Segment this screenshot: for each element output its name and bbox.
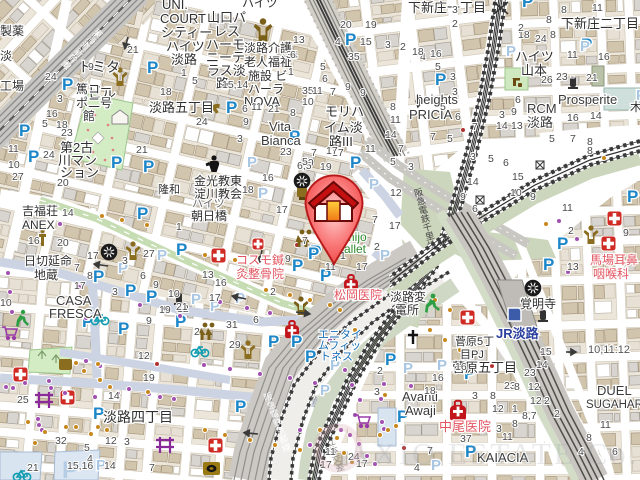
- svg-text:2: 2: [568, 225, 574, 237]
- svg-text:11: 11: [325, 446, 336, 458]
- svg-text:21: 21: [127, 44, 139, 56]
- svg-text:10: 10: [302, 96, 314, 108]
- svg-text:1: 1: [181, 67, 187, 79]
- svg-text:6: 6: [242, 103, 248, 115]
- svg-text:12: 12: [138, 350, 150, 362]
- svg-text:5: 5: [390, 156, 396, 168]
- svg-text:8: 8: [561, 4, 567, 16]
- svg-text:2: 2: [270, 286, 276, 298]
- svg-text:5: 5: [440, 101, 446, 113]
- svg-text:13: 13: [293, 34, 305, 46]
- svg-text:7: 7: [472, 121, 478, 133]
- svg-text:P: P: [308, 244, 319, 263]
- svg-text:3: 3: [452, 86, 458, 98]
- svg-text:イム淡: イム淡: [324, 120, 363, 135]
- svg-text:山口パ: 山口パ: [207, 10, 246, 25]
- svg-text:覚明寺: 覚明寺: [520, 297, 556, 311]
- svg-text:地蔵: 地蔵: [34, 268, 58, 282]
- svg-text:P: P: [345, 30, 356, 49]
- svg-text:8: 8: [87, 270, 93, 282]
- svg-text:FRESCA: FRESCA: [49, 306, 102, 321]
- svg-text:2: 2: [400, 41, 406, 53]
- svg-text:20: 20: [57, 177, 69, 189]
- svg-text:COURT: COURT: [160, 11, 206, 26]
- svg-text:24: 24: [45, 71, 57, 83]
- svg-text:2: 2: [374, 241, 380, 253]
- svg-text:12: 12: [105, 435, 117, 447]
- svg-text:7: 7: [311, 147, 317, 159]
- svg-text:木島: 木島: [630, 99, 640, 114]
- svg-text:下新庄一丁目: 下新庄一丁目: [408, 0, 486, 15]
- svg-text:8: 8: [512, 418, 518, 430]
- svg-text:10,11:12: 10,11:12: [588, 344, 630, 356]
- svg-text:18: 18: [242, 184, 254, 196]
- svg-text:13: 13: [511, 120, 523, 132]
- svg-text:18: 18: [160, 86, 172, 98]
- svg-text:7: 7: [570, 133, 576, 145]
- svg-text:7: 7: [302, 235, 308, 247]
- svg-text:14: 14: [385, 129, 397, 141]
- svg-text:P: P: [305, 347, 316, 366]
- svg-text:PRICIA: PRICIA: [409, 107, 453, 122]
- svg-text:P: P: [385, 350, 396, 369]
- svg-text:P: P: [403, 360, 413, 377]
- svg-text:17: 17: [326, 145, 338, 157]
- svg-text:7: 7: [74, 262, 80, 274]
- svg-text:工場: 工場: [0, 79, 24, 93]
- svg-text:6: 6: [290, 49, 296, 61]
- svg-text:21: 21: [268, 103, 280, 115]
- svg-text:6: 6: [472, 203, 478, 215]
- svg-text:9: 9: [345, 81, 351, 93]
- svg-text:P: P: [292, 256, 303, 275]
- svg-text:13: 13: [202, 269, 214, 281]
- svg-text:ポ二号: ポ二号: [76, 96, 112, 110]
- svg-text:4: 4: [335, 36, 341, 48]
- svg-text:14: 14: [467, 176, 479, 188]
- svg-text:12: 12: [492, 403, 504, 415]
- svg-text:10: 10: [510, 187, 522, 199]
- svg-text:16: 16: [262, 172, 274, 184]
- svg-text:6: 6: [253, 314, 259, 326]
- svg-text:5: 5: [447, 133, 453, 145]
- svg-text:AXIO ESTATE Co.,: AXIO ESTATE Co.,: [348, 436, 640, 471]
- svg-text:3: 3: [57, 93, 63, 105]
- svg-text:21: 21: [27, 462, 39, 474]
- svg-text:12: 12: [390, 187, 402, 199]
- svg-text:17: 17: [87, 250, 99, 262]
- svg-text:10: 10: [0, 297, 12, 309]
- svg-text:21: 21: [176, 301, 188, 313]
- svg-text:23: 23: [280, 146, 292, 158]
- svg-text:P: P: [147, 58, 158, 77]
- svg-text:ハイツ: ハイツ: [515, 49, 554, 64]
- svg-text:17: 17: [209, 292, 221, 304]
- svg-text:2: 2: [518, 22, 524, 34]
- svg-text:16: 16: [598, 51, 610, 63]
- svg-text:7: 7: [372, 214, 378, 226]
- svg-text:DUEL: DUEL: [597, 383, 632, 398]
- svg-text:老人福祉: 老人福祉: [244, 54, 292, 69]
- svg-text:2: 2: [194, 326, 200, 338]
- svg-text:7: 7: [149, 462, 155, 474]
- svg-text:2: 2: [554, 408, 560, 420]
- svg-text:9: 9: [153, 279, 159, 291]
- svg-text:19: 19: [143, 372, 155, 384]
- svg-text:8: 8: [390, 101, 396, 113]
- svg-text:3: 3: [385, 39, 391, 51]
- svg-text:1: 1: [512, 403, 518, 415]
- svg-text:P: P: [143, 157, 154, 176]
- svg-text:18: 18: [412, 46, 424, 58]
- svg-text:16: 16: [567, 112, 579, 124]
- svg-text:6: 6: [140, 270, 146, 282]
- svg-text:11: 11: [562, 202, 573, 214]
- svg-text:6: 6: [455, 111, 461, 123]
- svg-text:Vita: Vita: [269, 119, 292, 134]
- svg-text:施設 ビ: 施設 ビ: [248, 68, 287, 83]
- svg-text:15: 15: [360, 36, 372, 48]
- svg-text:灸整骨院: 灸整骨院: [236, 266, 284, 281]
- svg-text:3: 3: [452, 4, 458, 16]
- svg-text:5: 5: [42, 118, 48, 130]
- svg-text:14: 14: [104, 460, 116, 472]
- svg-text:14: 14: [496, 120, 508, 132]
- svg-text:8: 8: [587, 145, 593, 157]
- svg-text:P: P: [258, 185, 268, 202]
- svg-text:3: 3: [450, 71, 456, 83]
- svg-text:15: 15: [512, 171, 524, 183]
- svg-text:6: 6: [503, 157, 509, 169]
- svg-text:10: 10: [168, 288, 180, 300]
- svg-text:P: P: [320, 382, 330, 399]
- svg-text:P: P: [125, 281, 136, 300]
- svg-text:淡路: 淡路: [171, 52, 197, 67]
- svg-text:3: 3: [408, 161, 414, 173]
- svg-text:5: 5: [488, 153, 494, 165]
- svg-text:14: 14: [108, 390, 120, 402]
- svg-text:P: P: [235, 397, 246, 416]
- svg-text:5: 5: [302, 156, 308, 168]
- svg-text:RCM: RCM: [527, 101, 557, 116]
- svg-text:26: 26: [541, 74, 553, 86]
- svg-text:6: 6: [322, 73, 328, 85]
- svg-text:3: 3: [122, 255, 128, 267]
- svg-text:18: 18: [424, 385, 436, 397]
- svg-text:P: P: [580, 38, 590, 55]
- svg-text:淡路四丁目: 淡路四丁目: [103, 409, 173, 425]
- svg-text:P: P: [543, 255, 554, 274]
- svg-text:2: 2: [452, 18, 458, 30]
- svg-text:19: 19: [159, 304, 171, 316]
- svg-text:P: P: [118, 319, 129, 338]
- svg-text:7: 7: [398, 143, 404, 155]
- svg-text:21: 21: [586, 72, 598, 84]
- svg-text:咽喉科: 咽喉科: [593, 267, 629, 281]
- svg-text:P: P: [157, 247, 167, 264]
- svg-text:12: 12: [528, 381, 540, 393]
- svg-text:2: 2: [544, 395, 550, 407]
- svg-text:19: 19: [365, 19, 377, 31]
- svg-text:朝日橋: 朝日橋: [191, 209, 227, 223]
- svg-text:17: 17: [74, 280, 86, 292]
- svg-text:11: 11: [592, 2, 603, 14]
- svg-text:ANEX: ANEX: [22, 218, 55, 232]
- svg-text:24: 24: [196, 116, 208, 128]
- svg-text:P: P: [191, 291, 201, 308]
- svg-text:電所: 電所: [395, 303, 419, 317]
- svg-text:21: 21: [136, 144, 148, 156]
- svg-text:吉福荘: 吉福荘: [22, 203, 58, 218]
- svg-text:8: 8: [290, 107, 296, 119]
- svg-text:3: 3: [112, 286, 118, 298]
- svg-text:15: 15: [540, 346, 552, 358]
- svg-text:14: 14: [62, 207, 74, 219]
- svg-text:P: P: [557, 234, 568, 253]
- svg-text:7: 7: [330, 86, 336, 98]
- svg-text:P: P: [62, 75, 73, 94]
- svg-text:5: 5: [320, 61, 326, 73]
- svg-text:9: 9: [146, 315, 152, 327]
- svg-text:8: 8: [550, 29, 556, 41]
- svg-text:9: 9: [360, 87, 366, 99]
- svg-text:Prosperite: Prosperite: [558, 92, 617, 107]
- svg-text:16: 16: [430, 48, 442, 60]
- svg-text:8: 8: [490, 390, 496, 402]
- svg-text:27: 27: [12, 171, 24, 183]
- svg-text:淡路五丁目: 淡路五丁目: [149, 100, 214, 115]
- svg-text:9: 9: [511, 106, 517, 118]
- svg-text:24: 24: [535, 33, 547, 45]
- svg-text:16: 16: [455, 361, 467, 373]
- svg-text:P: P: [247, 154, 257, 171]
- svg-text:24: 24: [43, 149, 55, 161]
- svg-text:20: 20: [57, 237, 69, 249]
- svg-text:13: 13: [567, 261, 579, 273]
- svg-text:JR淡路: JR淡路: [496, 326, 540, 341]
- svg-text:P: P: [226, 98, 237, 117]
- svg-text:3: 3: [470, 151, 476, 163]
- svg-text:5: 5: [192, 75, 198, 87]
- svg-text:淡路介護: 淡路介護: [244, 40, 292, 55]
- svg-text:コスモ鍼: コスモ鍼: [236, 252, 284, 267]
- svg-text:17: 17: [389, 220, 401, 232]
- svg-text:3: 3: [472, 390, 478, 402]
- svg-text:P: P: [137, 204, 148, 223]
- svg-text:31: 31: [226, 319, 238, 331]
- svg-text:11: 11: [8, 143, 19, 155]
- svg-text:9: 9: [88, 61, 94, 73]
- svg-text:3: 3: [237, 133, 243, 145]
- svg-text:9: 9: [460, 191, 466, 203]
- svg-text:馬場耳鼻: 馬場耳鼻: [590, 252, 638, 267]
- svg-text:7: 7: [430, 131, 436, 143]
- svg-text:トネス: トネス: [320, 350, 353, 363]
- svg-text:15,16: 15,16: [67, 460, 93, 472]
- svg-text:3: 3: [124, 436, 130, 448]
- svg-text:3: 3: [374, 386, 380, 398]
- svg-text:淡路変: 淡路変: [390, 289, 426, 304]
- svg-text:1: 1: [288, 66, 294, 78]
- svg-text:9: 9: [530, 191, 536, 203]
- svg-text:中尾医院: 中尾医院: [439, 419, 491, 434]
- svg-text:P: P: [380, 247, 390, 264]
- svg-text:P: P: [291, 332, 302, 351]
- svg-text:16: 16: [432, 372, 444, 384]
- svg-text:淡: 淡: [0, 49, 12, 63]
- svg-text:8,7: 8,7: [522, 410, 537, 422]
- svg-text:11: 11: [251, 101, 262, 113]
- svg-text:日切延命: 日切延命: [24, 253, 72, 268]
- svg-text:11: 11: [567, 49, 578, 61]
- svg-text:17: 17: [276, 204, 288, 216]
- svg-text:モリハ: モリハ: [325, 104, 364, 119]
- svg-text:シティー: シティー: [161, 25, 212, 40]
- svg-text:SUGAHARA: SUGAHARA: [586, 399, 640, 411]
- svg-text:8: 8: [514, 381, 520, 393]
- svg-text:29: 29: [229, 339, 241, 351]
- svg-text:P: P: [19, 121, 30, 140]
- svg-text:11: 11: [365, 143, 376, 155]
- svg-text:11: 11: [390, 114, 401, 126]
- svg-text:17: 17: [356, 261, 368, 273]
- svg-text:15,14: 15,14: [222, 79, 248, 91]
- svg-text:16: 16: [215, 277, 227, 289]
- svg-text:トミタ: トミタ: [78, 59, 120, 75]
- svg-text:5: 5: [549, 133, 555, 145]
- svg-text:松岡医院: 松岡医院: [334, 288, 382, 302]
- svg-text:ハイツ: ハイツ: [242, 0, 278, 10]
- svg-text:P: P: [627, 187, 638, 206]
- svg-text:P: P: [176, 240, 187, 259]
- svg-text:11: 11: [600, 419, 611, 431]
- svg-text:館: 館: [83, 108, 95, 123]
- svg-text:P: P: [93, 267, 104, 286]
- svg-text:14: 14: [536, 359, 548, 371]
- svg-text:2: 2: [377, 365, 383, 377]
- svg-text:製薬: 製薬: [0, 24, 24, 38]
- svg-text:8: 8: [546, 14, 552, 26]
- svg-text:P: P: [522, 0, 533, 11]
- svg-text:9: 9: [623, 227, 629, 239]
- svg-text:12: 12: [530, 395, 542, 407]
- svg-text:6: 6: [515, 94, 521, 106]
- svg-text:23: 23: [524, 367, 536, 379]
- svg-text:Awaji: Awaji: [405, 403, 436, 418]
- svg-text:32: 32: [55, 435, 67, 447]
- svg-text:P: P: [28, 147, 39, 166]
- svg-text:35: 35: [348, 51, 360, 63]
- svg-text:20: 20: [340, 19, 352, 31]
- svg-text:P: P: [268, 332, 279, 351]
- svg-text:隆和: 隆和: [158, 182, 180, 196]
- svg-text:27: 27: [143, 248, 155, 260]
- svg-text:23: 23: [61, 127, 73, 139]
- svg-text:19: 19: [320, 161, 332, 173]
- svg-text:淡路: 淡路: [527, 115, 553, 130]
- svg-text:16: 16: [28, 235, 40, 247]
- svg-text:9: 9: [285, 253, 291, 265]
- svg-text:P: P: [369, 176, 379, 193]
- svg-text:篤コー: 篤コー: [76, 82, 112, 96]
- svg-text:P: P: [111, 153, 122, 172]
- svg-text:P: P: [350, 153, 361, 172]
- svg-text:23 -: 23 -: [556, 71, 575, 83]
- svg-text:1: 1: [176, 221, 182, 233]
- svg-text:9: 9: [243, 116, 249, 128]
- svg-text:菅原5丁: 菅原5丁: [455, 335, 494, 348]
- svg-text:5: 5: [435, 61, 441, 73]
- svg-text:25: 25: [17, 394, 29, 406]
- svg-text:10: 10: [8, 159, 20, 171]
- svg-text:金光教東: 金光教東: [194, 173, 242, 188]
- svg-text:14: 14: [590, 110, 602, 122]
- svg-text:下新庄二丁目: 下新庄二丁目: [561, 16, 639, 31]
